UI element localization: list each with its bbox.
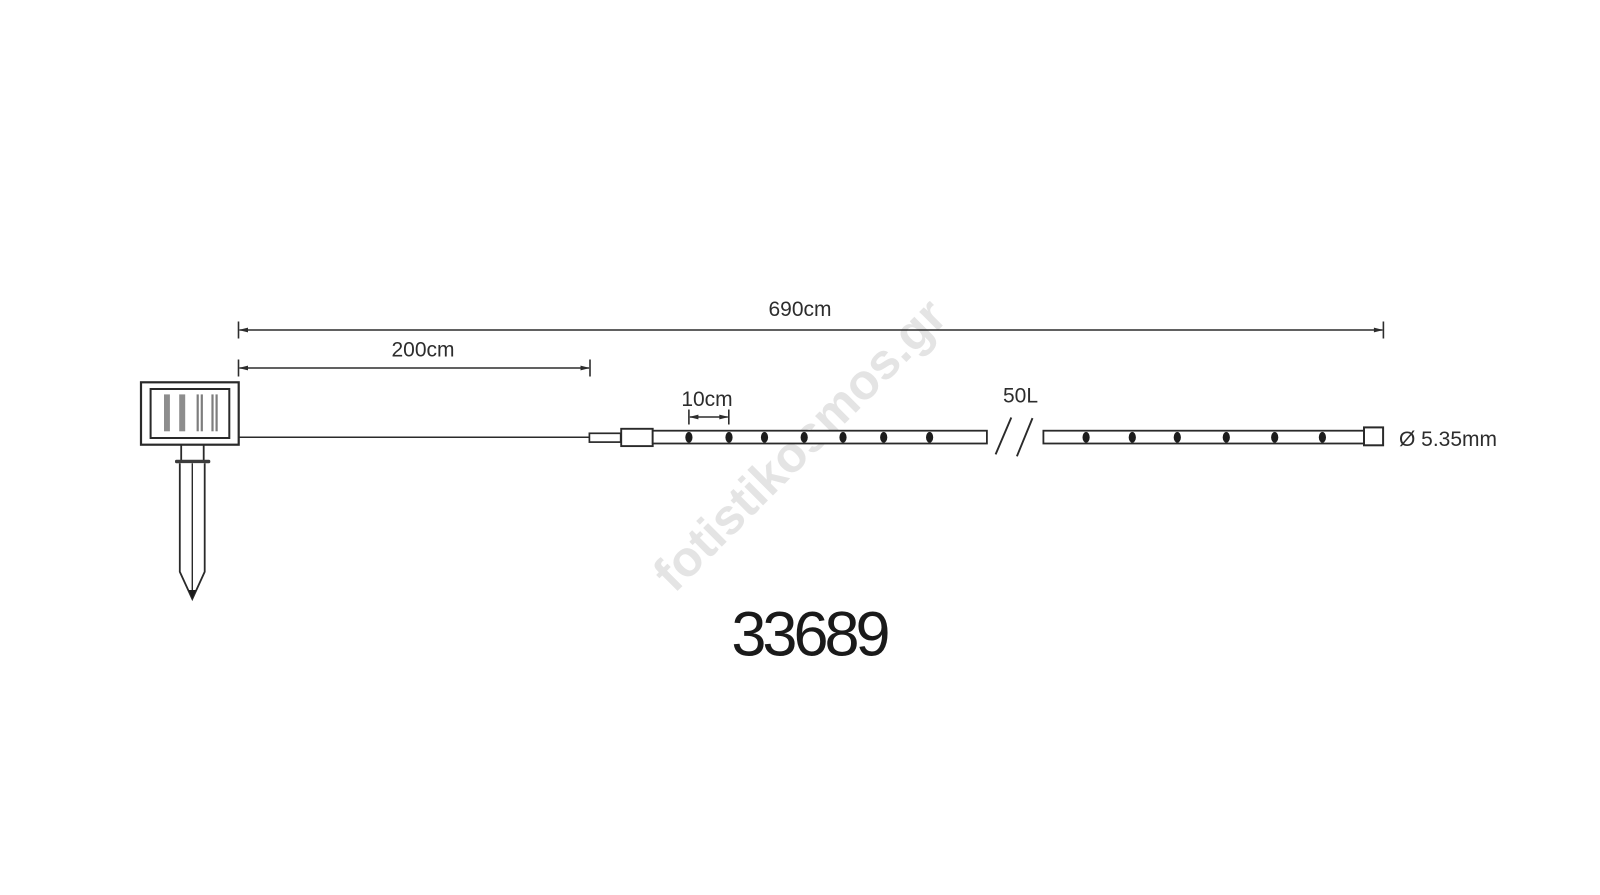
- svg-text:50L: 50L: [1003, 385, 1038, 408]
- svg-text:10cm: 10cm: [681, 388, 732, 411]
- svg-text:200cm: 200cm: [391, 339, 454, 362]
- svg-text:690cm: 690cm: [768, 298, 831, 321]
- svg-text:33689: 33689: [731, 600, 888, 670]
- svg-text:Ø 5.35mm: Ø 5.35mm: [1399, 428, 1497, 451]
